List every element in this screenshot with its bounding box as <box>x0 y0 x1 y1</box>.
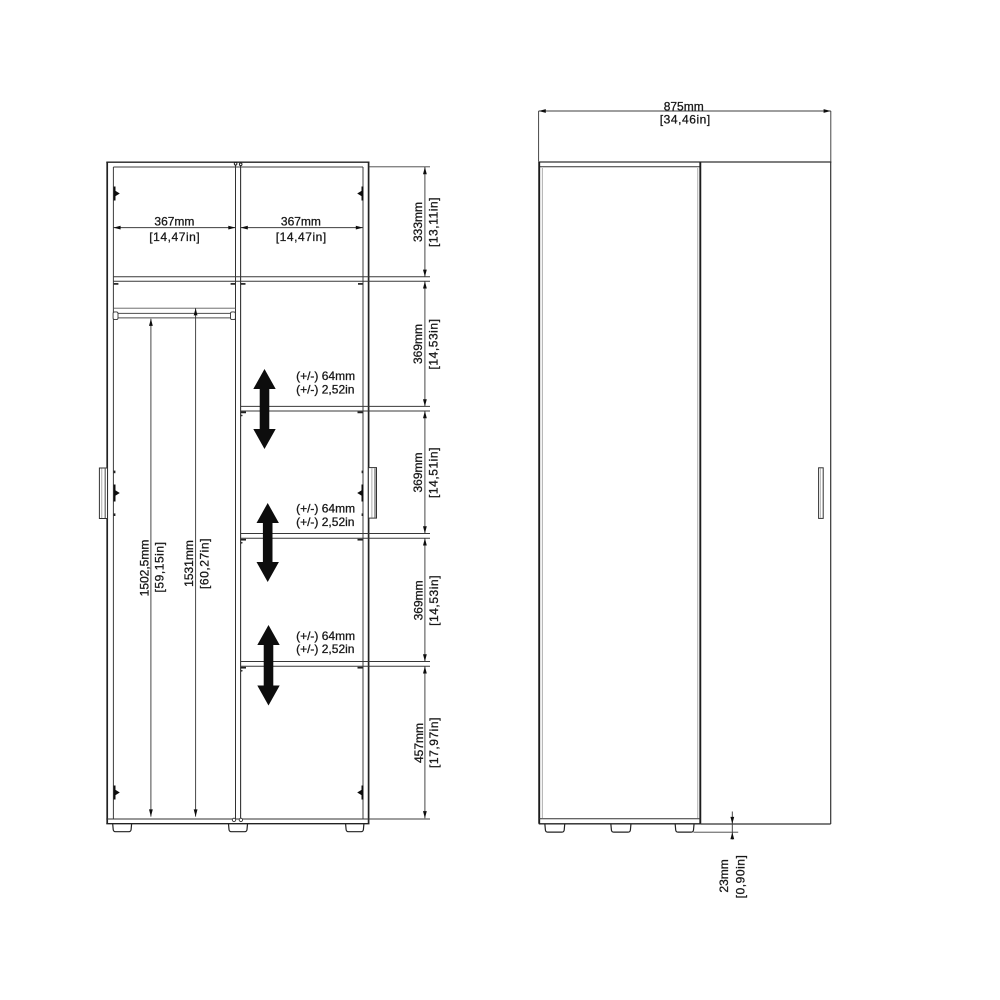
svg-text:[14,47in]: [14,47in] <box>149 230 200 244</box>
svg-text:875mm: 875mm <box>664 99 704 113</box>
svg-text:[59,15in]: [59,15in] <box>152 542 166 593</box>
svg-text:(+/-) 64mm: (+/-) 64mm <box>296 629 355 643</box>
svg-text:(+/-) 2,52in: (+/-) 2,52in <box>296 515 354 529</box>
svg-text:[34,46in]: [34,46in] <box>660 112 711 126</box>
svg-text:457mm: 457mm <box>412 723 426 763</box>
svg-text:[14,53in]: [14,53in] <box>427 319 441 370</box>
svg-text:367mm: 367mm <box>154 215 194 229</box>
svg-text:369mm: 369mm <box>411 580 425 620</box>
svg-text:[14,53in]: [14,53in] <box>427 575 441 626</box>
svg-text:1502,5mm: 1502,5mm <box>138 540 152 597</box>
svg-text:(+/-) 64mm: (+/-) 64mm <box>296 369 355 383</box>
svg-text:369mm: 369mm <box>411 452 425 492</box>
svg-text:333mm: 333mm <box>411 202 425 242</box>
svg-text:(+/-) 64mm: (+/-) 64mm <box>296 502 355 516</box>
svg-text:1531mm: 1531mm <box>182 540 196 587</box>
svg-text:[13,11in]: [13,11in] <box>427 197 441 247</box>
svg-text:369mm: 369mm <box>411 324 425 364</box>
svg-text:[0,90in]: [0,90in] <box>734 855 748 899</box>
svg-text:(+/-) 2,52in: (+/-) 2,52in <box>296 642 354 656</box>
svg-text:[60,27in]: [60,27in] <box>197 538 211 589</box>
svg-text:[14,47in]: [14,47in] <box>276 230 327 244</box>
svg-text:367mm: 367mm <box>281 215 321 229</box>
svg-text:(+/-) 2,52in: (+/-) 2,52in <box>296 383 354 397</box>
svg-text:[17,97in]: [17,97in] <box>427 717 441 768</box>
svg-text:23mm: 23mm <box>717 859 731 892</box>
svg-text:[14,51in]: [14,51in] <box>427 447 441 498</box>
